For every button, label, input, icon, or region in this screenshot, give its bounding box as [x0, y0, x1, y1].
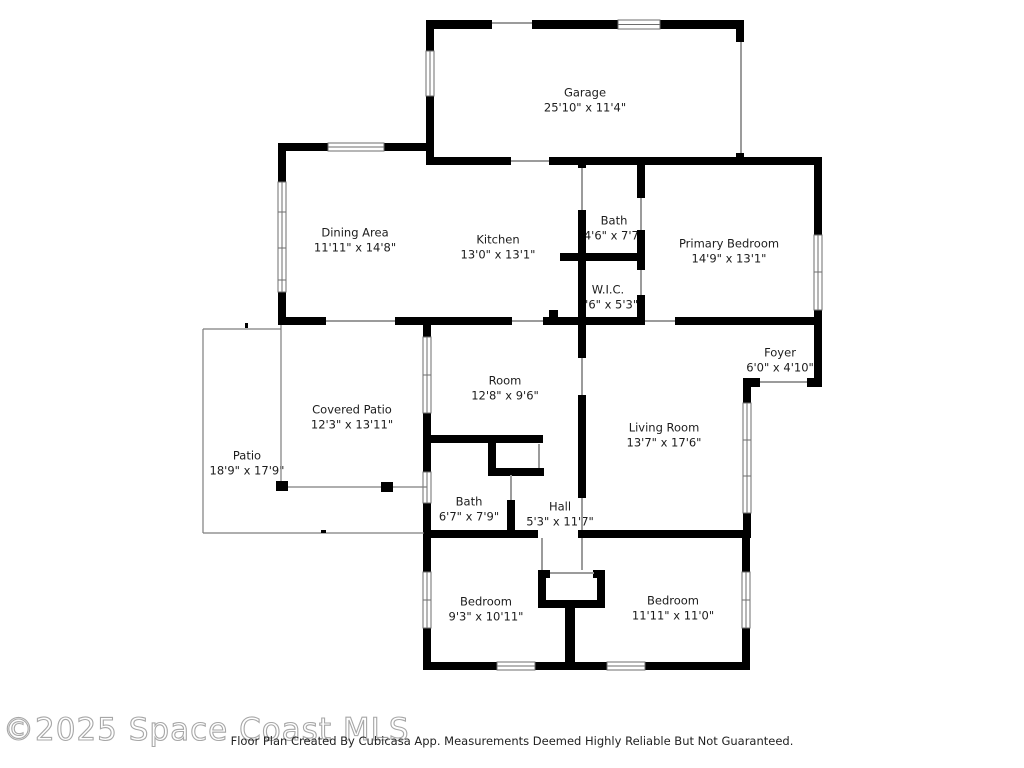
room-label-kitchen: Kitchen13'0" x 13'1": [461, 232, 536, 261]
disclaimer-text: Floor Plan Created By Cubicasa App. Meas…: [0, 734, 1024, 748]
room-name: Bath: [584, 213, 644, 228]
room-label-bedroom-left: Bedroom9'3" x 10'11": [449, 594, 524, 623]
room-label-covered-patio: Covered Patio12'3" x 13'11": [311, 402, 393, 431]
room-name: Primary Bedroom: [679, 236, 779, 251]
room-name: Bedroom: [632, 593, 714, 608]
room-label-foyer: Foyer6'0" x 4'10": [746, 345, 814, 374]
room-name: Patio: [210, 448, 285, 463]
room-dimensions: 9'3" x 10'11": [449, 609, 524, 624]
room-dimensions: 11'11" x 14'8": [314, 240, 396, 255]
room-name: Living Room: [627, 420, 702, 435]
room-dimensions: 25'10" x 11'4": [544, 100, 626, 115]
room-label-living-room: Living Room13'7" x 17'6": [627, 420, 702, 449]
room-label-bath-lower: Bath6'7" x 7'9": [439, 494, 499, 523]
room-dimensions: 6'7" x 7'9": [439, 509, 499, 524]
room-label-hall: Hall5'3" x 11'7": [526, 499, 594, 528]
room-name: Foyer: [746, 345, 814, 360]
room-name: Covered Patio: [311, 402, 393, 417]
room-name: Garage: [544, 85, 626, 100]
room-name: Dining Area: [314, 225, 396, 240]
room-name: Bedroom: [449, 594, 524, 609]
room-name: Hall: [526, 499, 594, 514]
room-dimensions: 12'8" x 9'6": [471, 388, 539, 403]
room-dimensions: 6'0" x 4'10": [746, 360, 814, 375]
room-dimensions: 13'0" x 13'1": [461, 247, 536, 262]
room-label-bedroom-right: Bedroom11'11" x 11'0": [632, 593, 714, 622]
room-name: Room: [471, 373, 539, 388]
room-label-bath-upper: Bath4'6" x 7'7": [584, 213, 644, 242]
room-dimensions: 12'3" x 13'11": [311, 417, 393, 432]
room-name: W.I.C.: [578, 282, 638, 297]
room-dimensions: 4'6" x 5'3": [578, 297, 638, 312]
room-dimensions: 13'7" x 17'6": [627, 435, 702, 450]
room-dimensions: 11'11" x 11'0": [632, 608, 714, 623]
room-dimensions: 5'3" x 11'7": [526, 514, 594, 529]
room-label-wic: W.I.C.4'6" x 5'3": [578, 282, 638, 311]
room-label-room: Room12'8" x 9'6": [471, 373, 539, 402]
floor-plan: Garage25'10" x 11'4"Dining Area11'11" x …: [0, 0, 1024, 768]
room-label-dining-area: Dining Area11'11" x 14'8": [314, 225, 396, 254]
room-dimensions: 14'9" x 13'1": [679, 251, 779, 266]
room-dimensions: 4'6" x 7'7": [584, 228, 644, 243]
room-label-garage: Garage25'10" x 11'4": [544, 85, 626, 114]
room-name: Bath: [439, 494, 499, 509]
room-dimensions: 18'9" x 17'9": [210, 463, 285, 478]
room-labels-layer: Garage25'10" x 11'4"Dining Area11'11" x …: [0, 0, 1024, 768]
room-label-patio: Patio18'9" x 17'9": [210, 448, 285, 477]
room-name: Kitchen: [461, 232, 536, 247]
room-label-primary-bedroom: Primary Bedroom14'9" x 13'1": [679, 236, 779, 265]
